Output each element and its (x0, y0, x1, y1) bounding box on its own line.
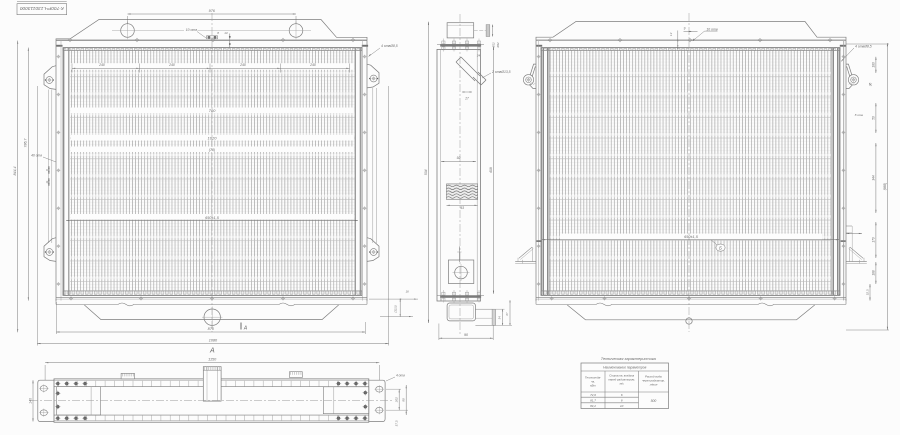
svg-text:240: 240 (239, 63, 246, 67)
svg-text:976: 976 (209, 9, 216, 13)
svg-text:(868): (868) (883, 183, 887, 190)
svg-text:2 отвØ13,5: 2 отвØ13,5 (491, 70, 511, 74)
svg-text:А: А (209, 348, 215, 355)
svg-text:80: 80 (402, 398, 406, 402)
svg-text:650±1,5: 650±1,5 (684, 235, 699, 239)
svg-text:500: 500 (651, 399, 657, 403)
svg-text:504: 504 (424, 169, 428, 175)
svg-text:240: 240 (168, 63, 175, 67)
svg-text:57,5: 57,5 (395, 420, 399, 426)
svg-text:Ø42: Ø42 (496, 42, 500, 48)
svg-text:84,2: 84,2 (590, 404, 596, 408)
svg-text:16: 16 (406, 289, 410, 293)
svg-text:Б: Б (719, 246, 722, 251)
svg-text:870: 870 (208, 327, 215, 331)
svg-text:4 отвØ8,5: 4 отвØ8,5 (381, 44, 398, 48)
svg-text:50: 50 (871, 116, 875, 120)
svg-text:786,7: 786,7 (24, 138, 28, 148)
svg-text:81,7: 81,7 (590, 399, 596, 403)
svg-text:8: 8 (217, 31, 219, 35)
svg-text:(32,5): (32,5) (393, 305, 397, 312)
svg-text:90: 90 (464, 333, 468, 337)
svg-text:Ø12: Ø12 (492, 42, 496, 48)
svg-text:9: 9 (684, 26, 686, 30)
svg-text:1020: 1020 (208, 136, 218, 141)
svg-text:4 отв: 4 отв (396, 373, 405, 377)
svg-text:6: 6 (621, 393, 623, 397)
svg-text:700: 700 (209, 108, 216, 113)
svg-text:140: 140 (28, 398, 32, 404)
svg-text:344: 344 (871, 175, 875, 181)
svg-text:92: 92 (457, 156, 461, 160)
svg-text:24: 24 (476, 54, 481, 58)
svg-text:л/мин: л/мин (649, 383, 658, 387)
svg-text:202: 202 (395, 397, 399, 403)
svg-text:4 отвØ8,5: 4 отвØ8,5 (855, 44, 872, 48)
svg-text:8 отв: 8 отв (855, 113, 864, 117)
svg-text:240: 240 (98, 63, 105, 67)
svg-text:8: 8 (621, 399, 623, 403)
svg-text:72,6: 72,6 (590, 393, 596, 397)
svg-text:54: 54 (498, 316, 502, 319)
svg-text:10: 10 (620, 404, 624, 408)
svg-text:408: 408 (489, 167, 493, 173)
svg-text:180: 180 (871, 62, 875, 68)
svg-text:Техническая характеристика: Техническая характеристика (601, 356, 657, 361)
svg-text:188: 188 (871, 270, 875, 276)
svg-text:А: А (243, 326, 248, 332)
svg-text:11: 11 (45, 180, 49, 183)
svg-text:1150: 1150 (208, 357, 217, 361)
svg-text:10 отв: 10 отв (186, 28, 197, 32)
svg-text:13: 13 (669, 32, 673, 36)
svg-text:67: 67 (505, 312, 509, 315)
svg-text:36: 36 (869, 83, 873, 87)
svg-text:52,5: 52,5 (865, 289, 869, 295)
svg-text:650±1,5: 650±1,5 (205, 216, 220, 220)
svg-text:кВт: кВт (590, 384, 596, 388)
svg-text:40 отв: 40 отв (31, 153, 42, 157)
svg-text:93: 93 (460, 206, 464, 210)
svg-text:1080: 1080 (209, 338, 218, 342)
svg-text:13: 13 (224, 31, 228, 35)
svg-text:170: 170 (871, 237, 875, 243)
svg-text:м/с: м/с (620, 382, 625, 386)
svg-text:(70): (70) (209, 148, 215, 152)
svg-text:240: 240 (309, 63, 316, 67)
svg-text:27: 27 (464, 96, 469, 100)
svg-text:Наименование параметров: Наименование параметров (603, 366, 646, 370)
svg-text:К-700РЧ.130113000: К-700РЧ.130113000 (20, 5, 64, 11)
svg-text:844,4: 844,4 (13, 167, 17, 176)
